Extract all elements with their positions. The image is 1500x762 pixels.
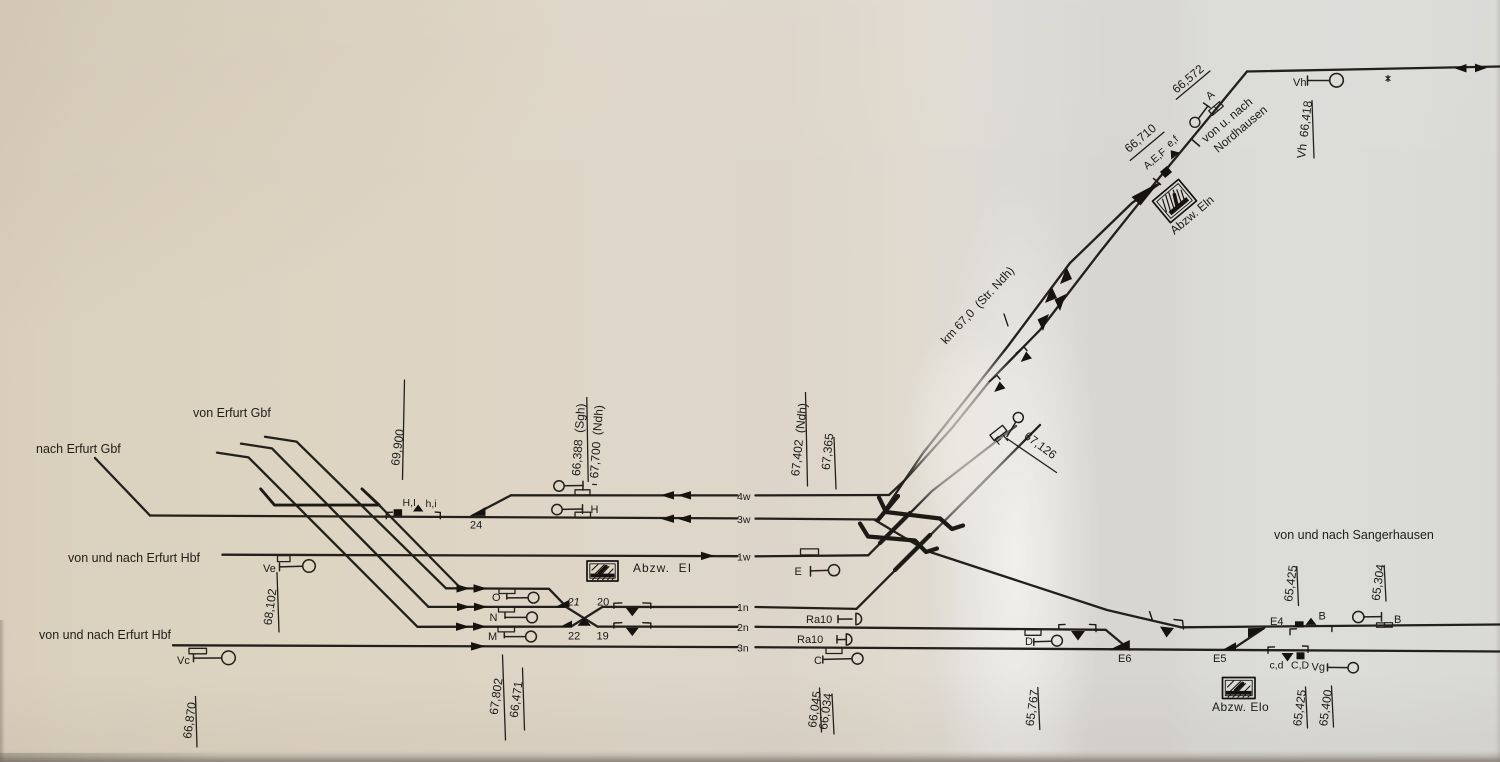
svg-text:von Erfurt Gbf: von Erfurt Gbf bbox=[193, 406, 271, 420]
svg-text:2n: 2n bbox=[737, 622, 749, 634]
svg-text:19: 19 bbox=[597, 631, 609, 643]
svg-text:Ve: Ve bbox=[263, 563, 276, 575]
svg-text:h,i: h,i bbox=[426, 498, 437, 510]
svg-text:3n: 3n bbox=[737, 643, 749, 655]
svg-text:69,900: 69,900 bbox=[388, 428, 407, 467]
svg-text:Vc: Vc bbox=[177, 655, 190, 667]
svg-text:68,102: 68,102 bbox=[261, 587, 280, 626]
svg-text:von und nach Erfurt Hbf: von und nach Erfurt Hbf bbox=[68, 551, 201, 565]
svg-text:e,f: e,f bbox=[1164, 133, 1181, 150]
svg-text:E5: E5 bbox=[1213, 653, 1226, 665]
svg-text:21: 21 bbox=[567, 597, 580, 609]
svg-text:1w: 1w bbox=[737, 552, 751, 564]
svg-text:67,126: 67,126 bbox=[1021, 429, 1059, 462]
svg-text:Vh: Vh bbox=[1293, 77, 1306, 89]
svg-text:Abzw. EI: Abzw. EI bbox=[633, 561, 692, 575]
svg-text:O: O bbox=[492, 592, 501, 604]
svg-text:von und nach Erfurt Hbf: von und nach Erfurt Hbf bbox=[39, 628, 172, 642]
svg-text:D: D bbox=[1025, 636, 1033, 648]
svg-text:H: H bbox=[591, 504, 599, 516]
svg-text:B: B bbox=[1394, 614, 1401, 626]
svg-text:C,D: C,D bbox=[1291, 660, 1310, 672]
svg-text:H,I: H,I bbox=[403, 497, 416, 509]
svg-text:M: M bbox=[488, 631, 497, 643]
svg-text:4w: 4w bbox=[737, 491, 751, 503]
svg-text:24: 24 bbox=[470, 520, 482, 532]
svg-text:22: 22 bbox=[568, 631, 580, 643]
svg-text:67,802: 67,802 bbox=[487, 677, 506, 716]
svg-text:66,388 (Sgh): 66,388 (Sgh) bbox=[569, 403, 588, 477]
svg-text:20: 20 bbox=[597, 597, 609, 609]
svg-text:C: C bbox=[814, 655, 822, 667]
svg-text:nach Erfurt Gbf: nach Erfurt Gbf bbox=[36, 442, 121, 456]
svg-text:A: A bbox=[1204, 88, 1218, 102]
svg-text:1n: 1n bbox=[737, 602, 749, 614]
svg-text:von und nach Sangerhausen: von und nach Sangerhausen bbox=[1274, 528, 1434, 542]
svg-text:Abzw. Elo: Abzw. Elo bbox=[1212, 700, 1269, 714]
svg-text:c,d: c,d bbox=[1270, 660, 1284, 672]
svg-text:67,700 (Ndh): 67,700 (Ndh) bbox=[587, 405, 606, 479]
svg-text:B: B bbox=[1319, 611, 1326, 623]
svg-text:Ra10: Ra10 bbox=[797, 634, 823, 646]
svg-text:3w: 3w bbox=[737, 514, 751, 526]
svg-text:Ra10: Ra10 bbox=[806, 614, 832, 626]
svg-text:E6: E6 bbox=[1118, 653, 1131, 665]
svg-text:N: N bbox=[490, 612, 498, 624]
svg-text:66,710: 66,710 bbox=[1122, 121, 1159, 156]
svg-text:E: E bbox=[795, 566, 802, 578]
svg-text:E4: E4 bbox=[1270, 616, 1283, 628]
svg-text:Vg: Vg bbox=[1312, 662, 1325, 674]
